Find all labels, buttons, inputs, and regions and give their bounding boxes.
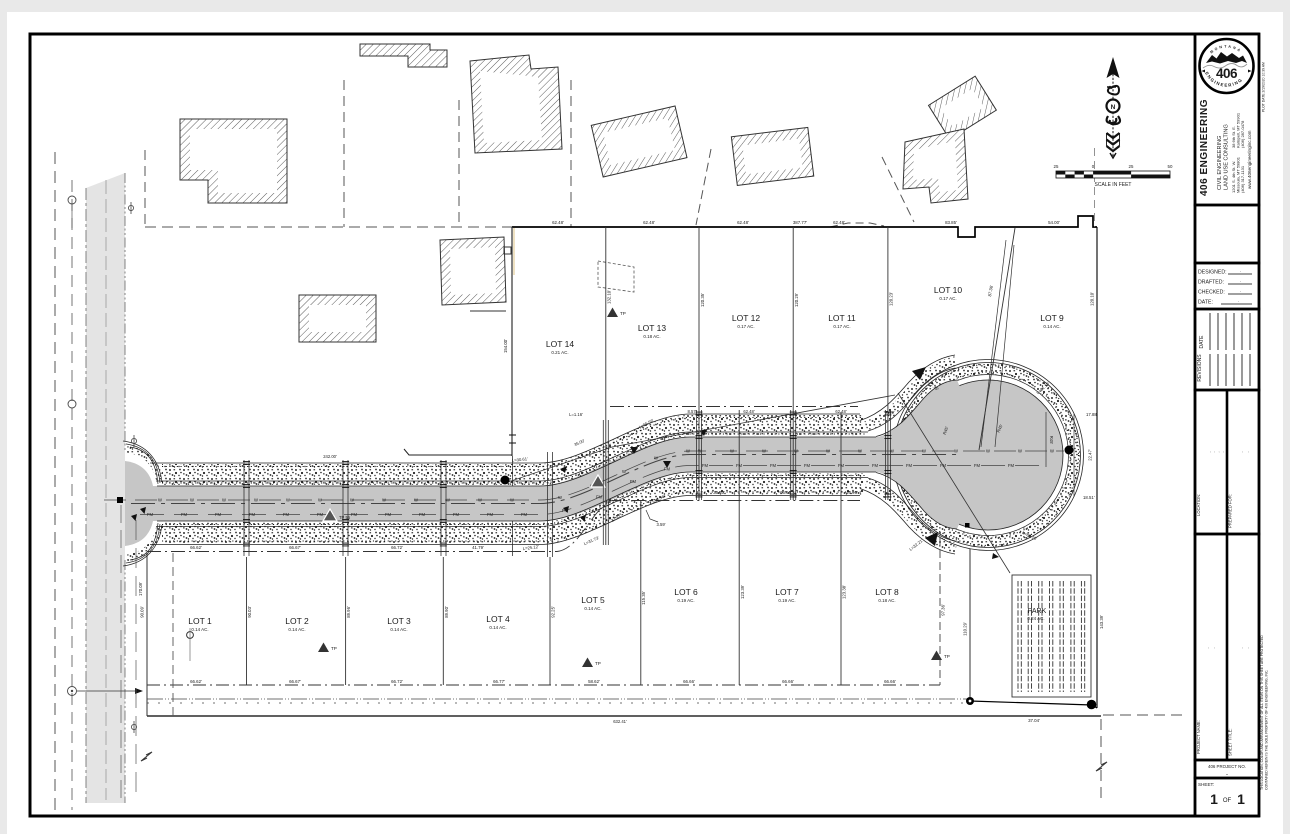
svg-text:FM: FM [736,463,743,468]
svg-text:FM: FM [147,512,154,517]
svg-text:CHECKED:: CHECKED: [1198,290,1225,296]
svg-text:, ,: , , [1242,644,1251,649]
svg-text:LOT 10: LOT 10 [934,285,962,295]
svg-text:66.66': 66.66' [683,679,695,684]
svg-text:LOT 2: LOT 2 [285,616,309,626]
svg-text:W: W [922,449,926,454]
svg-text:CONTAINED HEREIN IS THE SOLE P: CONTAINED HEREIN IS THE SOLE PROPERTY OF… [1265,670,1269,790]
svg-text:83.85': 83.85' [945,220,957,225]
svg-text:SHEET TITLE:: SHEET TITLE: [1228,728,1233,756]
svg-text:0.14 AC.: 0.14 AC. [489,625,506,630]
svg-text:W: W [986,449,990,454]
svg-text:120.10': 120.10' [1090,292,1095,306]
svg-text:TP: TP [595,661,601,666]
svg-text:66.66': 66.66' [884,679,896,684]
svg-text:LOT 9: LOT 9 [1040,313,1064,323]
svg-text:406 PROJECT NO.: 406 PROJECT NO. [1208,764,1246,769]
svg-text:89.90': 89.90' [444,606,449,618]
svg-text:154.00': 154.00' [503,339,508,353]
svg-text:FM: FM [317,512,324,517]
svg-text:170.09': 170.09' [138,582,143,596]
svg-text:123.38': 123.38' [842,585,847,599]
svg-text:FM: FM [630,479,637,484]
svg-text:62.48': 62.48' [833,220,845,225]
svg-text:REVISIONS: REVISIONS [1197,354,1203,382]
svg-text:41.79': 41.79' [472,545,484,550]
svg-text:TP: TP [620,311,626,316]
svg-text:0.18 AC.: 0.18 AC. [643,334,660,339]
svg-text:LOT 8: LOT 8 [875,587,899,597]
svg-text:W: W [510,498,514,503]
svg-text:W: W [654,456,658,461]
svg-text:97.36': 97.36' [941,604,946,616]
svg-text:LOT 6: LOT 6 [674,587,698,597]
svg-text:W: W [254,498,258,503]
svg-text:LOT 11: LOT 11 [828,313,856,323]
svg-text:W: W [686,449,690,454]
svg-text:L=1.16': L=1.16' [569,412,583,417]
svg-text:FM: FM [215,512,222,517]
svg-text:W: W [446,498,450,503]
svg-text:CIVIL ENGINEERING: CIVIL ENGINEERING [1217,136,1223,191]
svg-text:62.48': 62.48' [743,409,754,414]
svg-text:W: W [222,498,226,503]
svg-text:FM: FM [804,463,811,468]
svg-text:W: W [826,449,830,454]
svg-text:18.51': 18.51' [1083,495,1095,500]
svg-text:-: - [1240,280,1241,284]
svg-text:66.72': 66.72' [391,679,403,684]
svg-text:THIS LOCATION, COLOR AND ARRAN: THIS LOCATION, COLOR AND ARRANGEMENT OF … [1260,635,1264,790]
svg-text:33.80': 33.80' [713,490,725,495]
svg-text:W: W [478,498,482,503]
svg-text:1: 1 [1237,791,1245,807]
svg-text:DRAFTED:: DRAFTED: [1198,280,1224,286]
svg-text:0.21 AC.: 0.21 AC. [551,350,568,355]
svg-text:SCALE IN FEET: SCALE IN FEET [1095,182,1132,188]
svg-text:FM: FM [521,512,528,517]
svg-text:132.10': 132.10' [607,290,612,304]
svg-text:W: W [286,498,290,503]
svg-text:TP: TP [944,654,950,659]
svg-text:DESIGNED:: DESIGNED: [1198,270,1227,276]
svg-text:(406) 287-0478: (406) 287-0478 [1240,120,1245,148]
svg-text:FM: FM [596,495,603,500]
svg-text:54.00': 54.00' [1048,220,1060,225]
svg-text:58.62': 58.62' [588,679,600,684]
svg-text:LOT 12: LOT 12 [732,313,760,323]
svg-text:25: 25 [1054,164,1059,169]
svg-text:66.62': 66.62' [190,679,202,684]
svg-text:LOT 5: LOT 5 [581,595,605,605]
svg-text:LOT 7: LOT 7 [775,587,799,597]
svg-text:90.09': 90.09' [140,606,145,618]
svg-text:FM: FM [974,463,981,468]
svg-text:89.96': 89.96' [346,606,351,618]
svg-text:66.67': 66.67' [289,545,301,550]
svg-text:FM: FM [385,512,392,517]
svg-text:LOT 4: LOT 4 [486,614,510,624]
svg-text:62.48': 62.48' [552,220,564,225]
svg-text:66.67': 66.67' [289,679,301,684]
svg-text:PROJECT NAME:: PROJECT NAME: [1196,720,1201,754]
svg-text:0.17 AC.: 0.17 AC. [833,324,850,329]
svg-text:LOT 1: LOT 1 [188,616,212,626]
svg-text:PARK: PARK [1028,608,1047,615]
svg-text:N: N [1111,104,1116,111]
svg-text:120.23': 120.23' [889,292,894,306]
svg-text:FM: FM [419,512,426,517]
svg-text:0.18 AC.: 0.18 AC. [878,598,895,603]
svg-text:W: W [1018,449,1022,454]
svg-text:FM: FM [702,463,709,468]
svg-text:62.48': 62.48' [643,220,655,225]
svg-text:PREPARED FOR:: PREPARED FOR: [1228,494,1233,528]
svg-text:, ,: , , [1242,448,1251,453]
svg-text:W: W [382,498,386,503]
svg-text:DATE: DATE [1199,335,1205,349]
svg-text:W: W [190,498,194,503]
svg-text:LAND USE CONSULTING: LAND USE CONSULTING [1224,124,1230,190]
svg-text:FM: FM [487,512,494,517]
svg-text:FM: FM [770,463,777,468]
svg-text:W: W [954,449,958,454]
svg-text:0.14 AC.: 0.14 AC. [191,627,208,632]
svg-text:FM: FM [453,512,460,517]
svg-text:62.48': 62.48' [835,409,846,414]
svg-text:W: W [858,449,862,454]
svg-text:115.35': 115.35' [641,591,646,605]
svg-text:62.48': 62.48' [737,220,749,225]
svg-text:3.59': 3.59' [657,522,666,527]
svg-text:1: 1 [1210,791,1218,807]
svg-text:FM: FM [1008,463,1015,468]
svg-text:92.25': 92.25' [551,606,556,618]
svg-text:0.19 AC.: 0.19 AC. [778,598,795,603]
svg-text:FM: FM [872,463,879,468]
svg-text:R45': R45' [1049,436,1054,445]
svg-text:242.00': 242.00' [323,454,337,459]
svg-text:110.29': 110.29' [963,622,968,636]
svg-text:SHEET:: SHEET: [1198,782,1214,787]
svg-text:66.66': 66.66' [782,679,794,684]
svg-text:22.47': 22.47' [1088,449,1093,461]
svg-text:LOT 3: LOT 3 [387,616,411,626]
svg-text:143.39': 143.39' [1099,615,1104,629]
svg-text:17.88': 17.88' [1086,412,1098,417]
svg-text:0.14 AC.: 0.14 AC. [288,627,305,632]
svg-text:0.14 AC.: 0.14 AC. [584,606,601,611]
svg-text:0.17 AC.: 0.17 AC. [737,324,754,329]
svg-text:, ,: , , [1208,644,1217,649]
svg-text:LOT 14: LOT 14 [546,339,574,349]
svg-text:W: W [158,498,162,503]
svg-text:37.04': 37.04' [1028,718,1040,723]
svg-text:, , , ,: , , , , [1210,448,1225,453]
svg-text:W: W [558,495,562,500]
svg-text:W: W [622,469,626,474]
svg-text:FM: FM [181,512,188,517]
svg-text:(406) 317-1131: (406) 317-1131 [1240,165,1245,193]
svg-text:406 ENGINEERING: 406 ENGINEERING [1199,99,1210,196]
svg-text:0.14 AC.: 0.14 AC. [1043,324,1060,329]
svg-text:FM: FM [283,512,290,517]
svg-text:25: 25 [1129,164,1134,169]
svg-text:OF: OF [1223,798,1232,804]
svg-text:0.19 AC.: 0.19 AC. [677,598,694,603]
svg-text:www.406engineeringinc.com: www.406engineeringinc.com [1247,130,1252,189]
svg-text:0.17 AC.: 0.17 AC. [939,296,956,301]
svg-text:DATE:: DATE: [1198,300,1213,306]
svg-text:W: W [1050,449,1054,454]
svg-text:123.39': 123.39' [740,585,745,599]
svg-text:90.03': 90.03' [247,606,252,618]
svg-text:W: W [730,449,734,454]
svg-text:0.24 AC.: 0.24 AC. [1027,616,1044,621]
svg-text:W: W [350,498,354,503]
svg-text:120.29': 120.29' [794,293,799,307]
svg-text:FM: FM [351,512,358,517]
svg-text:632.41': 632.41' [613,719,627,724]
svg-text:FM: FM [906,463,913,468]
svg-text:FM: FM [838,463,845,468]
svg-text:66.72': 66.72' [391,545,403,550]
svg-text:0.14 AC.: 0.14 AC. [390,627,407,632]
svg-text:406: 406 [1216,66,1238,81]
svg-text:PLOT DATE 2/19/2020 10:39 AM: PLOT DATE 2/19/2020 10:39 AM [1262,62,1266,112]
svg-text:LOCATION:: LOCATION: [1196,494,1201,516]
svg-text:40.96': 40.96' [846,490,858,495]
svg-text:387.77': 387.77' [793,220,807,225]
svg-text:8.57': 8.57' [688,409,697,414]
svg-text:-: - [1240,270,1241,274]
svg-text:W: W [318,498,322,503]
svg-text:66.62': 66.62' [190,545,202,550]
svg-text:-: - [1238,300,1239,304]
svg-text:FM: FM [249,512,256,517]
svg-text:W: W [414,498,418,503]
svg-text:120.35': 120.35' [700,293,705,307]
svg-text:W: W [762,449,766,454]
svg-text:LOT 13: LOT 13 [638,323,666,333]
svg-text:66.77': 66.77' [493,679,505,684]
svg-text:50: 50 [1168,164,1173,169]
svg-text:-: - [1240,290,1241,294]
svg-text:TP: TP [331,646,337,651]
